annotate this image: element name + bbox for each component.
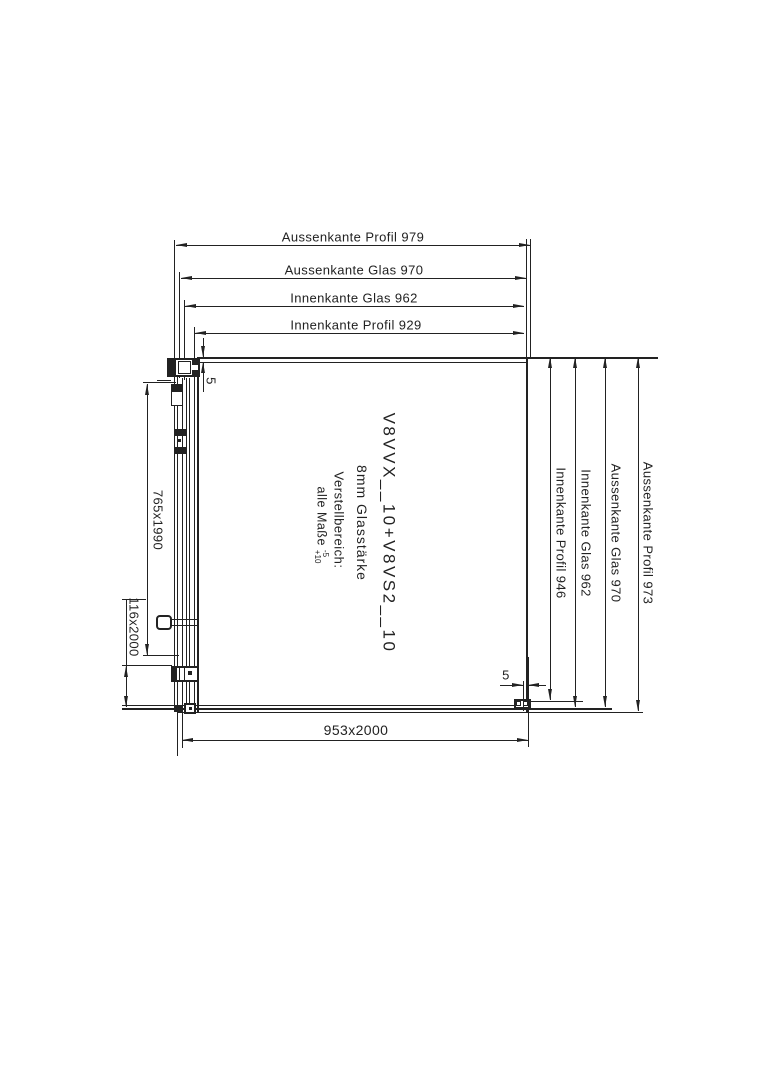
profile-line	[177, 358, 178, 756]
arrowhead	[528, 683, 539, 687]
arrowhead	[513, 331, 524, 335]
extension-line	[174, 240, 175, 360]
profile-line	[197, 357, 199, 712]
arrowhead	[512, 683, 523, 687]
arrowhead	[548, 689, 552, 700]
door-handle-shaft	[172, 625, 198, 626]
glass-clamp-screw	[188, 671, 192, 675]
dimension-line	[181, 278, 526, 279]
reference-line	[143, 382, 176, 383]
wall-bracket-hole	[516, 701, 521, 706]
pivot-hinge-inner	[178, 361, 191, 374]
arrowhead	[176, 243, 187, 247]
dim-label-innenkante-glas-962: Innenkante Glas 962	[290, 292, 418, 305]
dim-label-innenkante-profil-946: Innenkante Profil 946	[555, 467, 568, 598]
adjustment-title-text: Verstellbereich:	[333, 472, 346, 569]
pivot-hinge-detail	[192, 359, 199, 365]
arrowhead	[124, 696, 128, 707]
extension-line	[526, 239, 527, 357]
dimension-line	[182, 740, 528, 741]
gap-label-bottom-right: 5	[502, 669, 510, 682]
profile-fitting-dot	[177, 439, 181, 442]
corner-fitting	[175, 706, 182, 712]
tolerance-plus: +10	[313, 550, 321, 564]
dim-label-aussenkante-glas-970-right: Aussenkante Glas 970	[610, 464, 623, 603]
dim-label-765x1990: 765x1990	[152, 490, 165, 550]
bottom-bracket-dot	[189, 707, 192, 710]
arrowhead	[515, 276, 526, 280]
dim-label-innenkante-glas-962-right: Innenkante Glas 962	[580, 469, 593, 597]
arrowhead	[201, 346, 205, 357]
door-handle-shaft	[172, 619, 198, 620]
glass-thickness-text: 8mm Glasstärke	[355, 465, 369, 581]
tolerance-stack: -5+10	[313, 550, 329, 564]
technical-drawing: Aussenkante Profil 979 Aussenkante Glas …	[0, 0, 763, 1080]
arrowhead	[182, 738, 193, 742]
extension-line	[194, 327, 195, 358]
dim-label-aussenkante-profil-973: Aussenkante Profil 973	[642, 462, 655, 605]
arrowhead	[195, 331, 206, 335]
glass-edge-line	[523, 681, 524, 711]
glass-clamp-fill	[172, 667, 177, 681]
pivot-hinge-fill	[168, 359, 176, 376]
reference-line	[143, 655, 179, 656]
arrowhead	[201, 362, 205, 373]
arrowhead	[636, 700, 640, 711]
panel-top-edge	[197, 357, 658, 359]
glass-clamp-divider	[184, 667, 185, 681]
dimension-line	[605, 357, 606, 707]
pivot-hinge-detail	[192, 370, 199, 376]
arrowhead	[603, 696, 607, 707]
arrowhead	[573, 357, 577, 368]
product-model-text: V8VVX__10+V8VS2__10	[381, 413, 398, 654]
hinge-bracket-fill	[172, 385, 182, 392]
arrowhead	[636, 357, 640, 368]
dim-label-aussenkante-glas-970: Aussenkante Glas 970	[285, 264, 424, 277]
arrowhead	[513, 304, 524, 308]
door-handle-knob	[156, 615, 172, 630]
dimension-line	[185, 306, 524, 307]
dimension-line	[638, 357, 639, 711]
dimension-line	[550, 357, 551, 700]
extension-line	[530, 239, 531, 357]
tolerance-minus: -5	[321, 550, 329, 564]
dim-label-953x2000: 953x2000	[324, 723, 389, 737]
door-handle-cap	[197, 616, 199, 629]
profile-fitting	[175, 429, 186, 436]
dimension-line	[195, 333, 524, 334]
profile-fitting	[175, 447, 186, 454]
arrowhead	[517, 738, 528, 742]
dim-label-116x2000: 116x2000	[128, 597, 141, 656]
arrowhead	[519, 243, 530, 247]
adjustment-note-label: alle Maße	[315, 487, 329, 546]
arrowhead	[124, 666, 128, 677]
wall-flange-line	[157, 380, 171, 381]
dimension-line	[147, 384, 148, 655]
reference-line	[122, 665, 172, 666]
adjustment-note-text: alle Maße-5+10	[313, 487, 329, 564]
glass-top-edge	[190, 362, 526, 363]
profile-line	[174, 358, 175, 712]
dimension-line	[176, 245, 530, 246]
panel-bottom-edge	[178, 712, 643, 713]
arrowhead	[185, 304, 196, 308]
dim-label-innenkante-profil-929: Innenkante Profil 929	[290, 319, 421, 332]
profile-line	[194, 357, 195, 712]
arrowhead	[573, 696, 577, 707]
gap-label-top-left: 5	[205, 377, 218, 385]
arrowhead	[145, 644, 149, 655]
extension-line	[182, 713, 183, 748]
extension-line	[177, 713, 178, 756]
dimension-line	[575, 357, 576, 707]
arrowhead	[181, 276, 192, 280]
arrowhead	[603, 357, 607, 368]
glass-edge-line	[186, 378, 187, 706]
glass-clamp-divider	[179, 667, 180, 681]
glass-edge-line	[189, 378, 190, 706]
arrowhead	[548, 357, 552, 368]
arrowhead	[145, 384, 149, 395]
dim-label-aussenkante-profil-979: Aussenkante Profil 979	[282, 231, 425, 244]
extension-line	[528, 657, 529, 747]
